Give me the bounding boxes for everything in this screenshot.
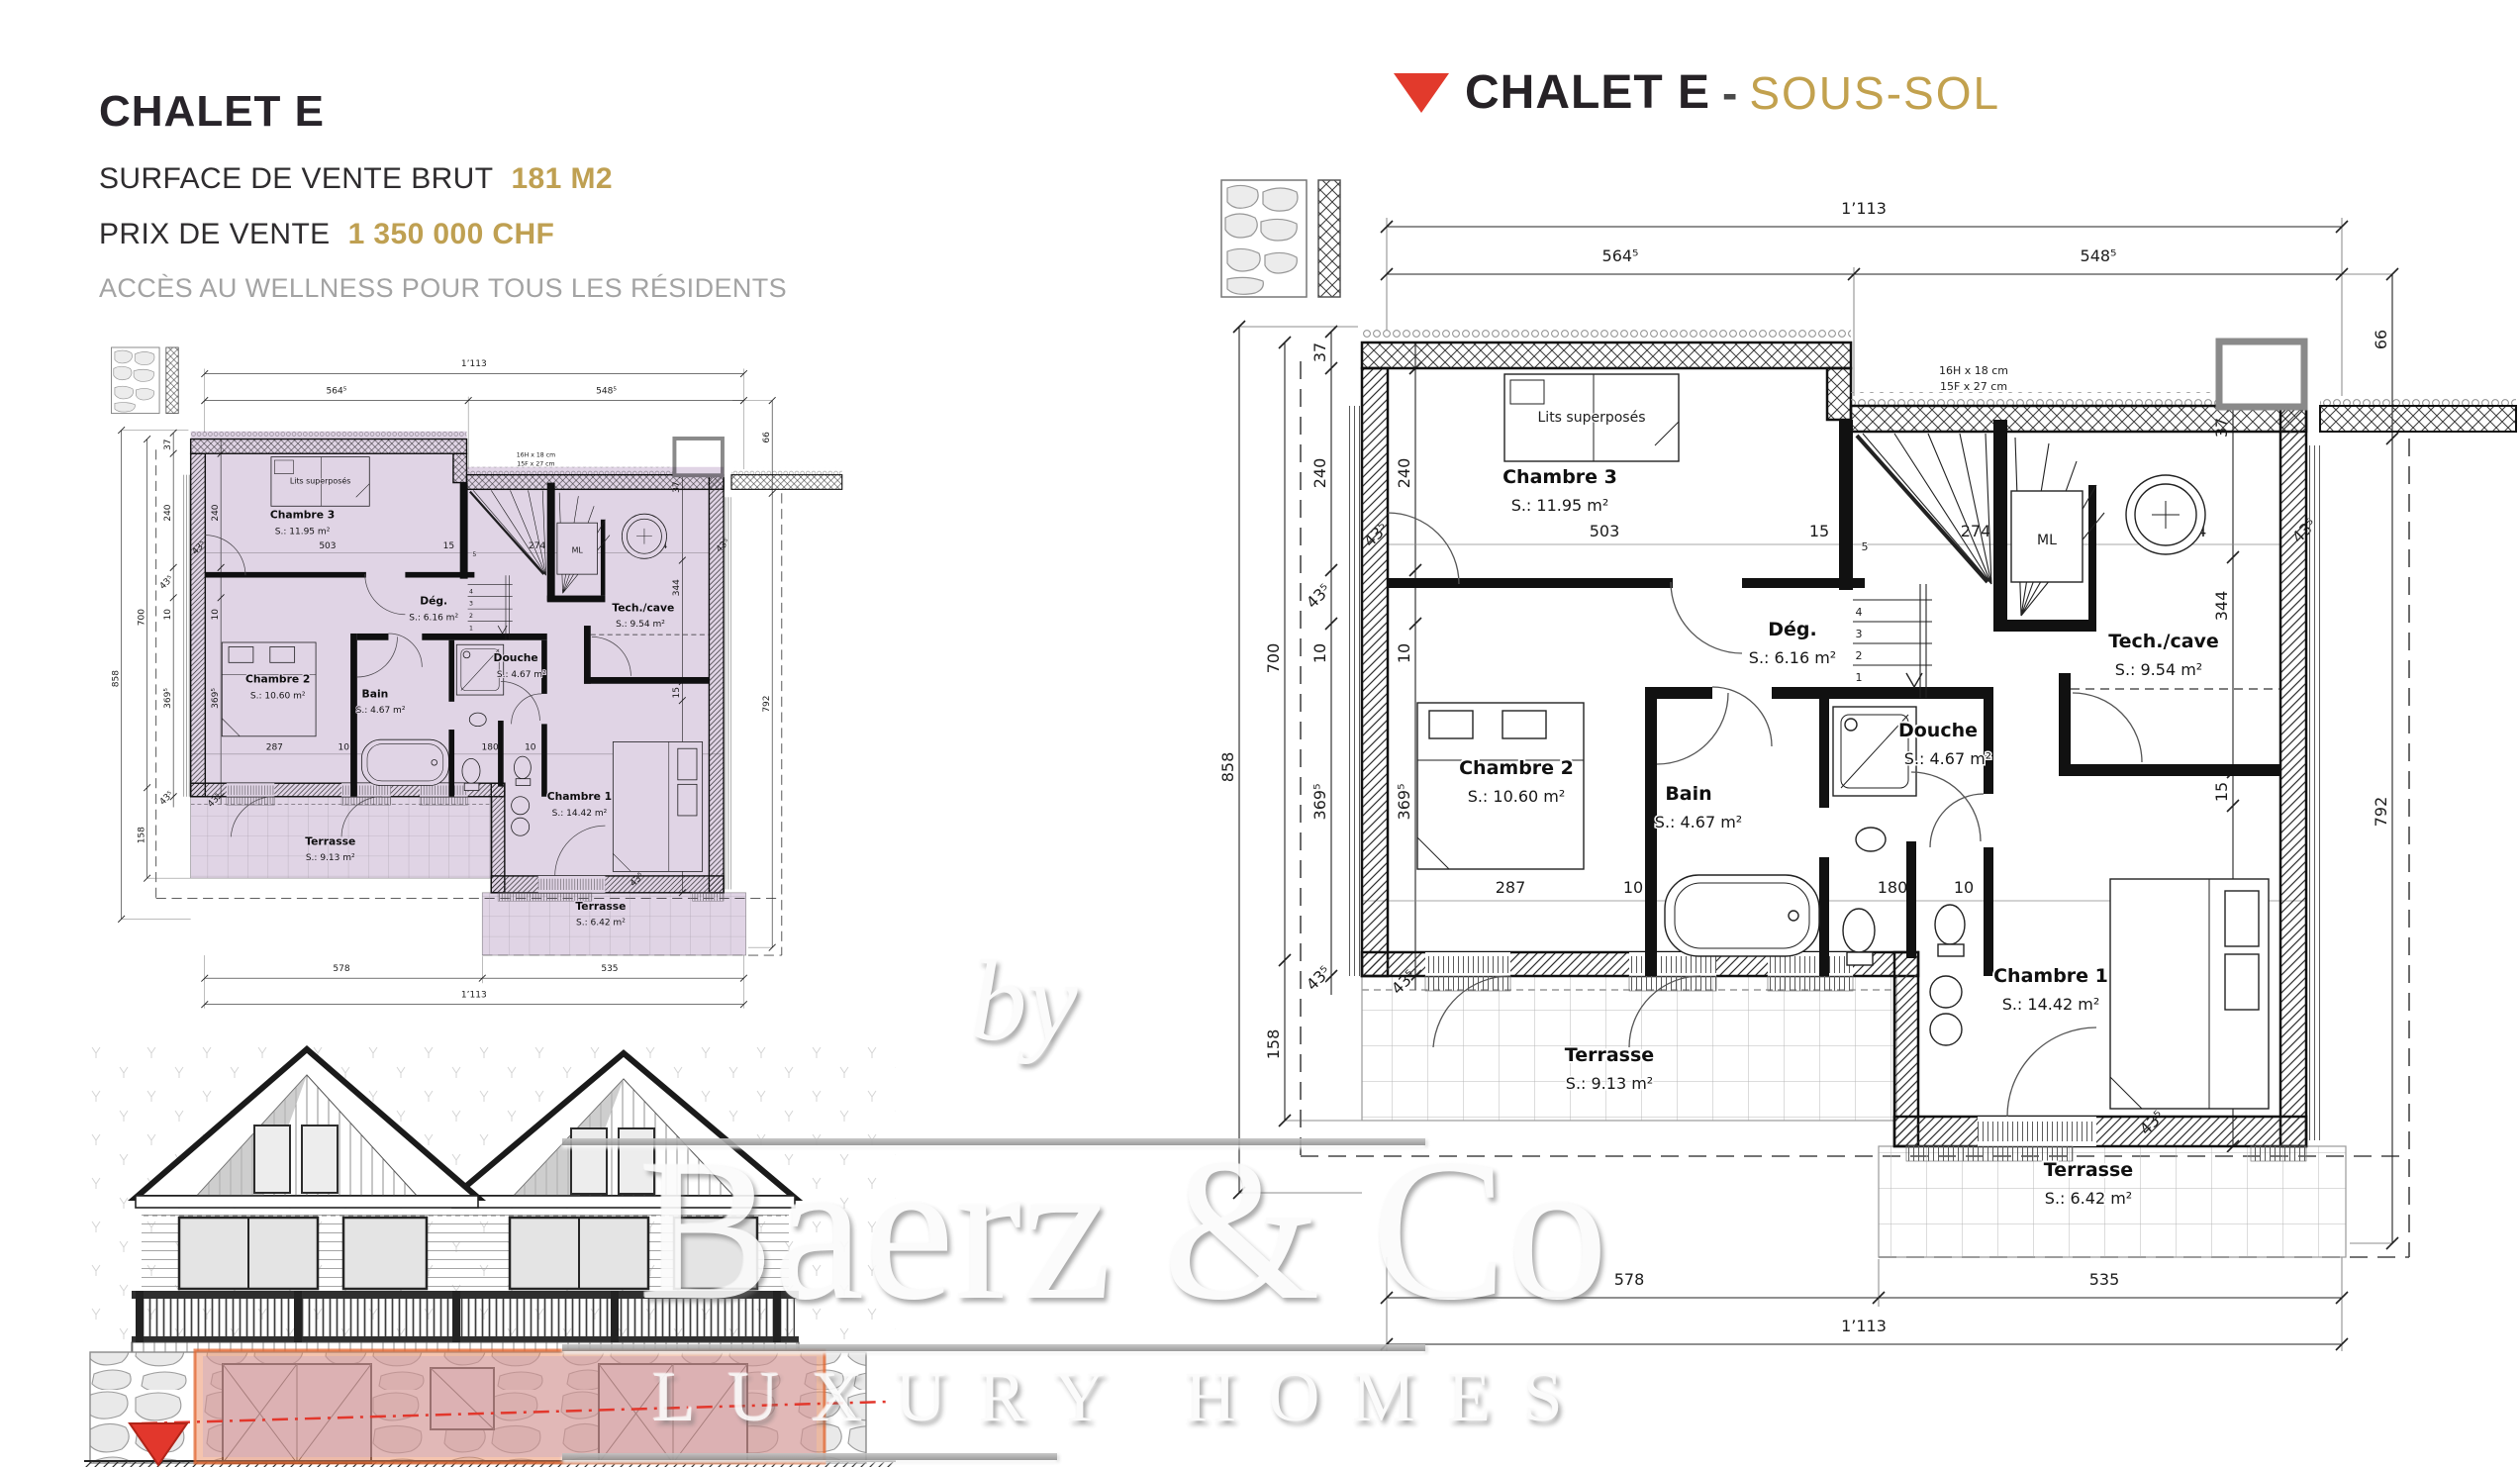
svg-text:792: 792 (762, 695, 772, 712)
watermark-by: by (970, 936, 1078, 1067)
svg-text:15F x 27 cm: 15F x 27 cm (517, 461, 554, 468)
svg-text:158: 158 (137, 827, 146, 843)
svg-text:37: 37 (163, 439, 173, 449)
svg-text:15F x 27 cm: 15F x 27 cm (1940, 380, 2007, 393)
svg-text:287: 287 (1496, 878, 1526, 897)
floor-title-name: CHALET E (1465, 65, 1710, 120)
svg-text:5: 5 (1862, 540, 1869, 553)
price-value: 1 350 000 CHF (348, 218, 555, 250)
svg-text:S.: 6.16 m²: S.: 6.16 m² (1749, 648, 1836, 667)
surface-label: SURFACE DE VENTE BRUT (99, 162, 493, 195)
lightwell (2219, 342, 2304, 407)
room-douche: Douche (1898, 720, 1978, 741)
page-title: CHALET E (99, 87, 787, 137)
balcony (132, 1291, 799, 1352)
svg-text:S.: 9.13 m²: S.: 9.13 m² (1566, 1074, 1653, 1093)
brochure-page: { "info": { "title": "CHALET E", "surfac… (0, 0, 2520, 1466)
svg-text:240: 240 (1395, 458, 1413, 489)
sous-sol-highlight (130, 1350, 888, 1465)
svg-text:503: 503 (1590, 522, 1620, 540)
svg-text:369⁵: 369⁵ (163, 688, 173, 709)
svg-text:548⁵: 548⁵ (596, 386, 617, 396)
svg-text:564⁵: 564⁵ (1602, 246, 1639, 265)
room-degagement: Dég. (1768, 619, 1816, 640)
price-row: PRIX DE VENTE1 350 000 CHF (99, 218, 787, 251)
svg-text:S.: 14.42 m²: S.: 14.42 m² (2002, 995, 2100, 1014)
svg-text:792: 792 (2372, 797, 2390, 828)
svg-text:43⁵: 43⁵ (1303, 580, 1334, 612)
svg-text:16H x 18 cm: 16H x 18 cm (1939, 364, 2008, 377)
svg-text:1’113: 1’113 (1841, 1317, 1887, 1335)
svg-text:369⁵: 369⁵ (1395, 784, 1413, 821)
room-terrasse1: Terrasse (1565, 1044, 1654, 1066)
svg-text:15: 15 (1809, 522, 1829, 540)
property-info: CHALET E SURFACE DE VENTE BRUT181 M2 PRI… (99, 87, 787, 304)
svg-text:2: 2 (1856, 649, 1863, 662)
small-floor-plan: 1’113 564⁵ 548⁵ 578 535 1’113 858 700 15… (107, 313, 844, 1011)
small-floor-plan-svg: 1’113 564⁵ 548⁵ 578 535 1’113 858 700 15… (107, 313, 844, 1011)
floor-title-dash: - (1722, 66, 1737, 120)
svg-text:S.: 11.95 m²: S.: 11.95 m² (1511, 496, 1609, 515)
room-bain: Bain (1665, 783, 1711, 805)
svg-text:858: 858 (111, 670, 121, 687)
svg-text:66: 66 (762, 432, 772, 443)
svg-text:274: 274 (1961, 522, 1991, 540)
ml-label: ML (2037, 533, 2057, 548)
svg-text:S.: 4.67 m²: S.: 4.67 m² (1904, 749, 1991, 768)
room-tech: Tech./cave (2108, 631, 2219, 652)
svg-text:535: 535 (601, 964, 618, 974)
room-terrasse2: Terrasse (2044, 1159, 2133, 1181)
floor-title-level: SOUS-SOL (1749, 66, 2000, 120)
svg-text:3: 3 (1856, 628, 1863, 640)
surface-value: 181 M2 (511, 162, 612, 195)
svg-text:S.: 10.60 m²: S.: 10.60 m² (1468, 787, 1566, 806)
svg-text:535: 535 (2089, 1270, 2120, 1289)
main-floor-plan: 1’113 564⁵ 548⁵ 578 535 1’113 858 700 15… (1213, 119, 2520, 1361)
svg-text:858: 858 (1218, 752, 1237, 783)
svg-text:43⁵: 43⁵ (1303, 962, 1334, 994)
upper-storey (142, 1208, 789, 1291)
svg-text:10: 10 (1310, 643, 1329, 663)
floor-plan-svg: 1’113 564⁵ 548⁵ 578 535 1’113 858 700 15… (1213, 119, 2520, 1356)
stone-wall-icon (1221, 180, 1340, 297)
svg-text:10: 10 (1395, 643, 1413, 663)
elevation-drawing (84, 1041, 896, 1467)
svg-text:37: 37 (1310, 342, 1329, 362)
svg-text:700: 700 (137, 609, 146, 626)
svg-text:344: 344 (2212, 591, 2231, 622)
room-chambre1: Chambre 1 (1993, 965, 2108, 987)
svg-text:66: 66 (2372, 330, 2390, 349)
floor-title: CHALET E - SOUS-SOL (1394, 65, 2000, 120)
svg-text:16H x 18 cm: 16H x 18 cm (517, 452, 555, 459)
wellness-note: ACCÈS AU WELLNESS POUR TOUS LES RÉSIDENT… (99, 273, 787, 304)
svg-text:S.: 6.42 m²: S.: 6.42 m² (2045, 1189, 2132, 1208)
bunk-label: Lits superposés (1538, 410, 1646, 426)
svg-text:1’113: 1’113 (461, 359, 487, 369)
room-chambre2: Chambre 2 (1459, 757, 1574, 779)
svg-text:158: 158 (1264, 1029, 1283, 1060)
svg-text:240: 240 (163, 504, 173, 521)
svg-text:1’113: 1’113 (1841, 199, 1887, 218)
svg-text:1: 1 (1856, 671, 1863, 684)
svg-text:369⁵: 369⁵ (1310, 784, 1329, 821)
svg-text:1’113: 1’113 (461, 990, 487, 1000)
red-triangle-icon (1394, 73, 1449, 113)
svg-text:10: 10 (1954, 878, 1974, 897)
svg-text:548⁵: 548⁵ (2081, 246, 2117, 265)
price-label: PRIX DE VENTE (99, 218, 331, 250)
purple-tint-overlay (191, 432, 746, 955)
svg-text:10: 10 (1623, 878, 1643, 897)
svg-text:700: 700 (1264, 643, 1283, 674)
svg-text:S.: 9.54 m²: S.: 9.54 m² (2115, 660, 2202, 679)
svg-text:578: 578 (333, 964, 349, 974)
svg-text:15: 15 (2212, 782, 2231, 802)
svg-text:578: 578 (1614, 1270, 1645, 1289)
svg-text:10: 10 (163, 609, 173, 621)
svg-text:S.: 4.67 m²: S.: 4.67 m² (1655, 813, 1742, 831)
room-chambre3: Chambre 3 (1502, 466, 1617, 488)
stone-wall-icon (112, 347, 179, 414)
svg-text:240: 240 (1310, 458, 1329, 489)
surface-row: SURFACE DE VENTE BRUT181 M2 (99, 162, 787, 196)
svg-text:180: 180 (1878, 878, 1908, 897)
svg-text:564⁵: 564⁵ (327, 386, 347, 396)
svg-text:4: 4 (1856, 606, 1863, 619)
